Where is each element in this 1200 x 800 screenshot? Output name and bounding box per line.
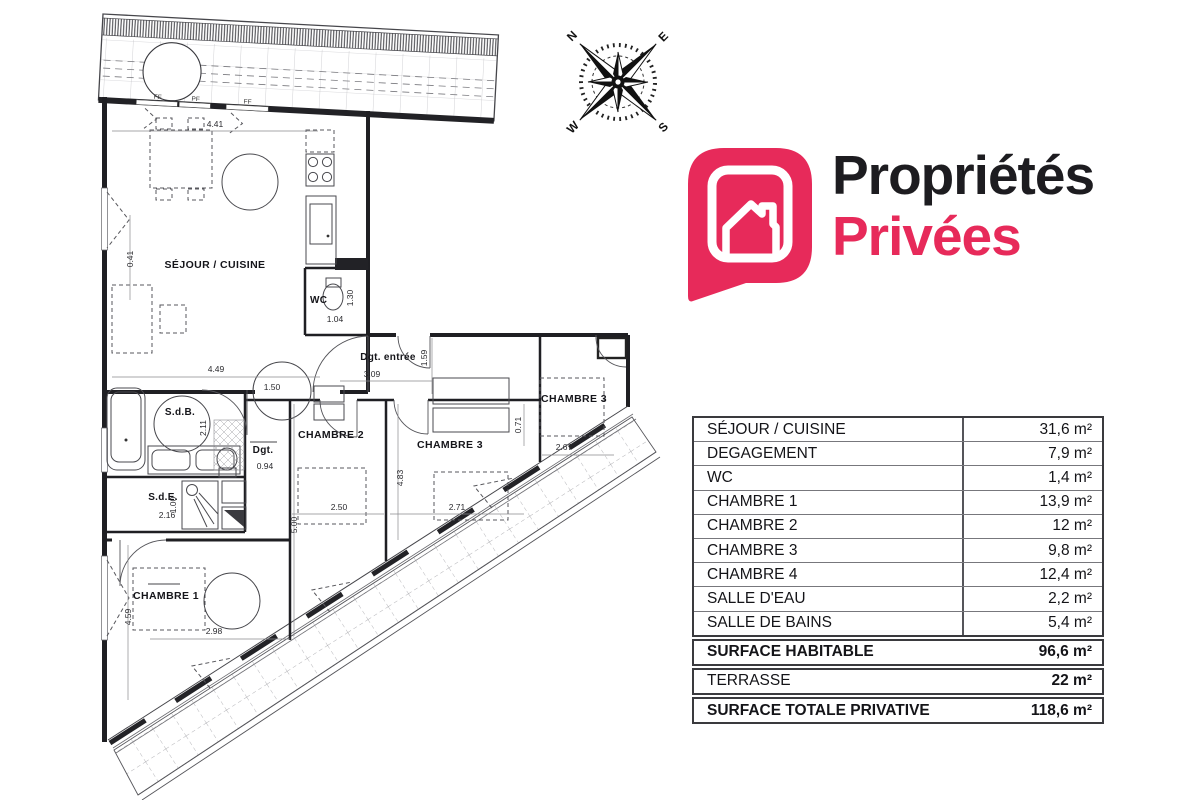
room-label-bedroom1: CHAMBRE 1 (133, 590, 199, 602)
room-label-bedroom3: CHAMBRE 3 (417, 439, 483, 451)
table-row-label: SALLE D'EAU (694, 587, 964, 610)
brand-logo-icon (686, 144, 814, 302)
table-row-value: 5,4 m² (964, 612, 1102, 635)
table-row-value: 118,6 m² (964, 699, 1102, 722)
window-mark-ff2: FF (243, 99, 251, 106)
table-row-label: SURFACE HABITABLE (694, 641, 964, 664)
dim-1-30: 1.30 (345, 289, 355, 306)
table-row-value: 22 m² (964, 670, 1102, 693)
brand-name-line2: Privées (832, 205, 1094, 268)
room-label-entry-hall: Dgt. entrée (360, 352, 416, 363)
dim-2-50: 2.50 (331, 502, 348, 512)
compass-rose: N E S W (518, 0, 700, 181)
table-row-label: DEGAGEMENT (694, 442, 964, 465)
table-row: SURFACE TOTALE PRIVATIVE118,6 m² (692, 697, 1104, 724)
table-row-label: CHAMBRE 4 (694, 563, 964, 586)
table-row: SALLE D'EAU2,2 m² (694, 586, 1102, 610)
table-row-value: 13,9 m² (964, 491, 1102, 514)
dim-1-50: 1.50 (264, 382, 281, 392)
dim-5-00: 5.00 (289, 516, 299, 533)
table-row-label: WC (694, 466, 964, 489)
terrace-top: FF PF FF (97, 14, 498, 147)
dim-0-71: 0.71 (513, 416, 523, 433)
table-row: SALLE DE BAINS5,4 m² (694, 611, 1102, 635)
window-mark-ff1: FF (154, 94, 162, 101)
table-row: CHAMBRE 212 m² (694, 514, 1102, 538)
compass-w: W (564, 118, 582, 136)
table-row-value: 9,8 m² (964, 539, 1102, 562)
table-row-label: CHAMBRE 2 (694, 515, 964, 538)
table-row: WC1,4 m² (694, 465, 1102, 489)
surface-table-summary: SURFACE HABITABLE96,6 m²TERRASSE22 m²SUR… (692, 639, 1104, 725)
room-label-bathroom: S.d.B. (165, 407, 195, 418)
room-label-wc: WC (310, 295, 327, 306)
table-row-value: 1,4 m² (964, 466, 1102, 489)
dim-3-09: 3.09 (364, 369, 381, 379)
dim-2-71: 2.71 (449, 502, 466, 512)
table-row: DEGAGEMENT7,9 m² (694, 441, 1102, 465)
dim-4-83: 4.83 (395, 469, 405, 486)
furniture (112, 118, 604, 630)
dim-4-59: 4.59 (123, 608, 133, 625)
table-row: CHAMBRE 39,8 m² (694, 538, 1102, 562)
table-row: SÉJOUR / CUISINE31,6 m² (694, 418, 1102, 441)
compass-e: E (655, 29, 671, 45)
table-row-label: SALLE DE BAINS (694, 612, 964, 635)
compass-s: S (655, 119, 671, 135)
dim-1-59: 1.59 (419, 349, 429, 366)
compass-n: N (564, 28, 580, 44)
table-row-label: CHAMBRE 3 (694, 539, 964, 562)
table-row-value: 2,2 m² (964, 587, 1102, 610)
table-row-value: 7,9 m² (964, 442, 1102, 465)
floor-plan: FF PF FF (0, 0, 700, 800)
table-row-label: CHAMBRE 1 (694, 491, 964, 514)
table-row-value: 96,6 m² (964, 641, 1102, 664)
dim-1-00: 1.00 (168, 496, 178, 513)
table-row-label: SÉJOUR / CUISINE (694, 418, 964, 441)
page: FF PF FF (0, 0, 1200, 800)
shower-room-fixtures (182, 481, 246, 529)
room-label-sejour: SÉJOUR / CUISINE (165, 258, 266, 271)
brand-name-line1: Propriétés (832, 144, 1094, 207)
table-row: CHAMBRE 412,4 m² (694, 562, 1102, 586)
dim-2-98: 2.98 (206, 626, 223, 636)
surface-table: SÉJOUR / CUISINE31,6 m²DEGAGEMENT7,9 m²W… (692, 416, 1104, 724)
window-mark-pf: PF (191, 96, 200, 103)
outer-walls (102, 97, 637, 753)
table-row: TERRASSE22 m² (692, 668, 1104, 695)
kitchen (306, 130, 336, 264)
dim-1-04: 1.04 (327, 314, 344, 324)
dim-4-41: 4.41 (207, 119, 224, 129)
dim-4-49: 4.49 (208, 364, 225, 374)
bathroom-fixtures (107, 388, 244, 477)
room-label-bedroom2: CHAMBRE 2 (298, 429, 364, 441)
table-row-value: 12,4 m² (964, 563, 1102, 586)
table-row-label: SURFACE TOTALE PRIVATIVE (694, 699, 964, 722)
table-row-label: TERRASSE (694, 670, 964, 693)
room-label-bedroom4: CHAMBRE 3 (541, 393, 607, 405)
table-row-value: 12 m² (964, 515, 1102, 538)
room-label-hall: Dgt. (253, 445, 274, 456)
dim-0-94: 0.94 (257, 461, 274, 471)
surface-table-main: SÉJOUR / CUISINE31,6 m²DEGAGEMENT7,9 m²W… (692, 416, 1104, 637)
table-row-value: 31,6 m² (964, 418, 1102, 441)
table-row: CHAMBRE 113,9 m² (694, 490, 1102, 514)
dim-2-67: 2.67 (556, 442, 573, 452)
brand-logo: Propriétés Privées (686, 144, 1094, 302)
dim-0-41: 0.41 (125, 250, 135, 267)
dim-2-11: 2.11 (198, 420, 208, 436)
table-row: SURFACE HABITABLE96,6 m² (692, 639, 1104, 666)
